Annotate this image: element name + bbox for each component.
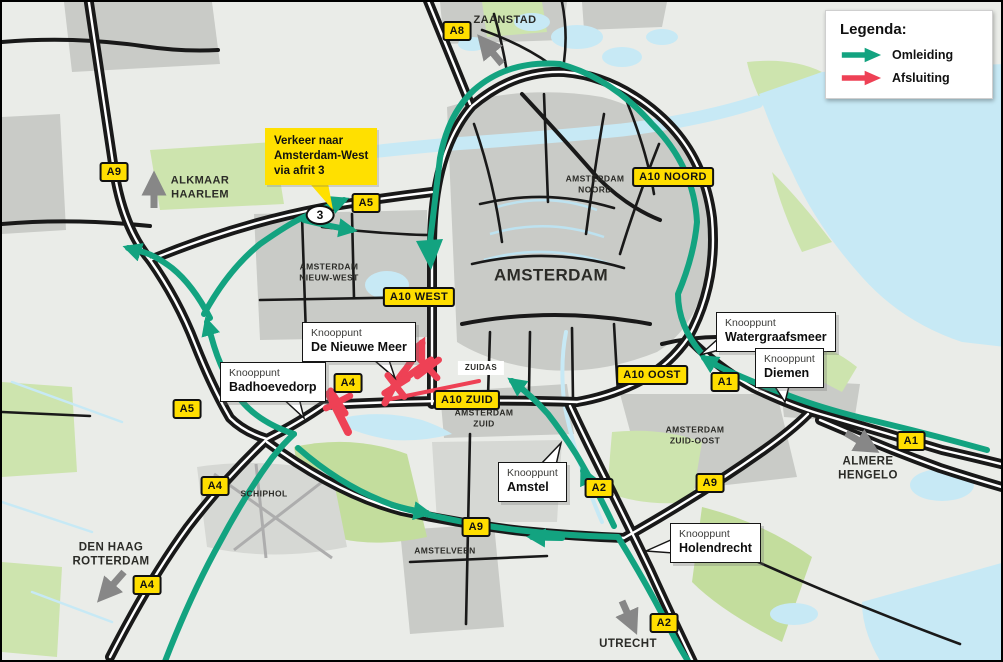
road-badge-a5-2: A5	[352, 193, 381, 213]
city-label-amsterdam: AMSTERDAM	[494, 264, 608, 285]
city-label-amsterdam-nieuw-west: AMSTERDAM NIEUW-WEST	[299, 261, 359, 282]
callout-kicker: Knooppunt	[311, 327, 407, 340]
city-label-zuidas: ZUIDAS	[458, 361, 504, 375]
road-badge-a10-oost-5: A10 OOST	[616, 365, 688, 385]
callout-junction-name: Diemen	[764, 366, 815, 382]
city-label-amsterdam-noord: AMSTERDAM NOORD	[566, 173, 625, 194]
road-badge-a5-9: A5	[173, 399, 202, 419]
road-badge-a8-0: A8	[443, 21, 472, 41]
exit-3-badge: 3	[306, 205, 335, 225]
city-label-zaanstad: ZAANSTAD	[474, 14, 537, 28]
callout-junction-name: Amstel	[507, 480, 558, 496]
junction-callout-badhoevedorp: KnooppuntBadhoevedorp	[220, 362, 326, 402]
city-label-alkmaar-haarlem: ALKMAAR HAARLEM	[171, 174, 229, 202]
junction-callout-holendrecht: KnooppuntHolendrecht	[670, 523, 761, 563]
afsluiting-arrow-icon	[840, 70, 882, 86]
road-badge-a1-10: A1	[897, 431, 926, 451]
detour-notice: Verkeer naar Amsterdam-West via afrit 3	[265, 128, 377, 185]
callout-kicker: Knooppunt	[679, 528, 752, 541]
road-badge-a2-13: A2	[585, 478, 614, 498]
road-badge-a4-11: A4	[201, 476, 230, 496]
junction-callout-watergraafsmeer: KnooppuntWatergraafsmeer	[716, 312, 836, 352]
city-label-utrecht: UTRECHT	[599, 637, 657, 651]
callout-junction-name: Watergraafsmeer	[725, 330, 827, 346]
legend-panel: Legenda: Omleiding Afsluiting	[825, 10, 993, 99]
omleiding-arrow-icon	[840, 47, 882, 63]
road-badge-a10-noord-3: A10 NOORD	[632, 167, 714, 187]
legend-item-label-omleiding: Omleiding	[892, 48, 953, 62]
city-label-almere-hengelo: ALMERE HENGELO	[838, 455, 898, 484]
callout-junction-name: Holendrecht	[679, 541, 752, 557]
callout-kicker: Knooppunt	[764, 353, 815, 366]
junction-callout-de-nieuwe-meer: KnooppuntDe Nieuwe Meer	[302, 322, 416, 362]
legend-title: Legenda:	[840, 21, 978, 38]
callout-junction-name: De Nieuwe Meer	[311, 340, 407, 356]
city-label-amstelveen: AMSTELVEEN	[414, 546, 475, 557]
legend-item-omleiding: Omleiding	[840, 47, 978, 63]
city-label-den-haag-rotterdam: DEN HAAG ROTTERDAM	[72, 541, 149, 570]
road-badge-a9-1: A9	[100, 162, 129, 182]
callout-junction-name: Badhoevedorp	[229, 380, 317, 396]
map-canvas: ZAANSTADALKMAAR HAARLEMAMSTERDAM NOORDAM…	[0, 0, 1003, 662]
road-badge-a9-12: A9	[696, 473, 725, 493]
road-badge-a9-14: A9	[462, 517, 491, 537]
road-badge-a1-6: A1	[711, 372, 740, 392]
city-label-amsterdam-zuid: AMSTERDAM ZUID	[455, 407, 514, 428]
legend-item-label-afsluiting: Afsluiting	[892, 71, 950, 85]
city-label-schiphol: SCHIPHOL	[240, 489, 287, 500]
junction-callout-amstel: KnooppuntAmstel	[498, 462, 567, 502]
road-badge-a2-16: A2	[650, 613, 679, 633]
city-label-amsterdam-zuid-oost: AMSTERDAM ZUID-OOST	[666, 424, 725, 445]
callout-kicker: Knooppunt	[507, 467, 558, 480]
callout-kicker: Knooppunt	[725, 317, 827, 330]
callout-kicker: Knooppunt	[229, 367, 317, 380]
legend-item-afsluiting: Afsluiting	[840, 70, 978, 86]
road-badge-a4-7: A4	[334, 373, 363, 393]
map-overlay: ZAANSTADALKMAAR HAARLEMAMSTERDAM NOORDAM…	[2, 2, 1001, 660]
road-badge-a10-zuid-8: A10 ZUID	[434, 390, 500, 410]
road-badge-a4-15: A4	[133, 575, 162, 595]
road-badge-a10-west-4: A10 WEST	[383, 287, 455, 307]
junction-callout-diemen: KnooppuntDiemen	[755, 348, 824, 388]
